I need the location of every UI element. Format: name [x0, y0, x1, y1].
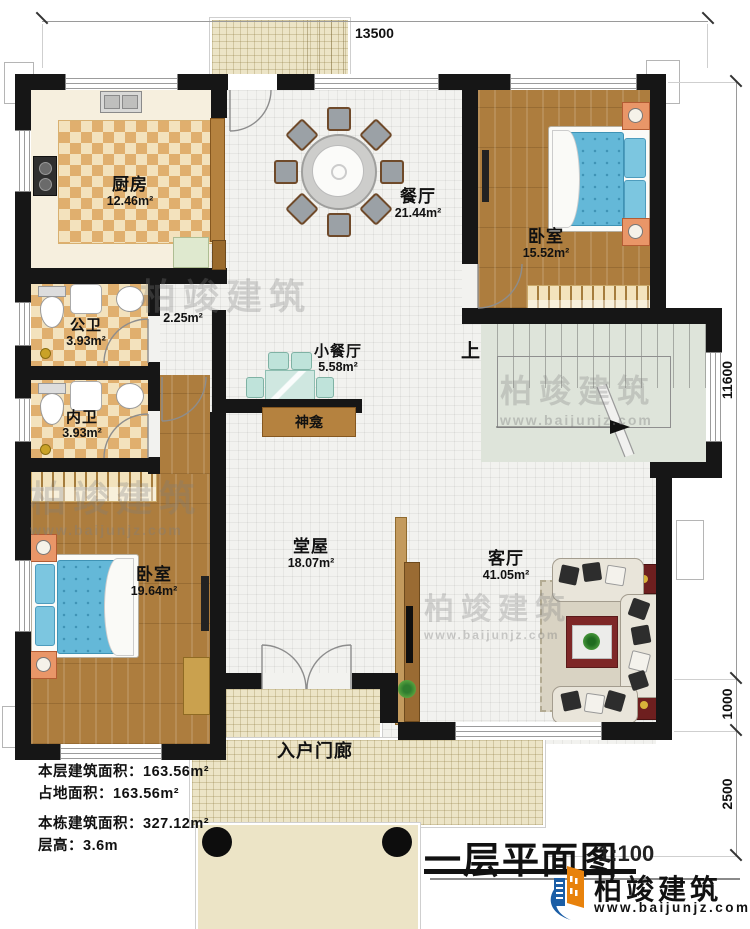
- info-floor-height: 层高：3.6m: [38, 834, 118, 855]
- dimension-right-lower-value: 2500: [719, 759, 735, 829]
- extension-line: [668, 82, 738, 83]
- publicbath-door-arc: [104, 319, 148, 363]
- room-label-inner-bath: 内卫 3.93m²: [62, 410, 102, 440]
- baijun-logo-icon: [543, 862, 593, 922]
- stair-break-mask: [597, 384, 634, 457]
- entry-door-left-arc: [262, 645, 306, 689]
- dimension-line-right: [736, 82, 737, 856]
- room-label-public-bath: 公卫 3.93m²: [66, 318, 106, 348]
- bedroom1-door-arc: [478, 264, 522, 308]
- room-label-kitchen: 厨房 12.46m²: [107, 176, 154, 208]
- room-label-small-dining: 小餐厅 5.58m²: [314, 344, 362, 374]
- room-label-bedroom2: 卧室 19.64m²: [131, 566, 178, 598]
- extension-line: [707, 24, 708, 68]
- entry-door-right-arc: [307, 645, 351, 689]
- info-floor-area: 本层建筑面积：163.56m²: [38, 760, 209, 781]
- room-label-bedroom1: 卧室 15.52m²: [523, 228, 570, 260]
- extension-line: [42, 24, 43, 68]
- floor-plan-canvas: 神龛: [0, 0, 750, 929]
- dimension-line-top: [42, 21, 708, 22]
- bedroom2-door-arc: [162, 377, 206, 421]
- room-label-corridor: 2.25m²: [163, 312, 203, 326]
- room-label-hall: 堂屋 18.07m²: [288, 538, 335, 570]
- plan-scale: 1:100: [598, 841, 654, 867]
- room-label-living: 客厅 41.05m²: [483, 550, 530, 582]
- dimension-top-value: 13500: [355, 25, 394, 41]
- brand-website: www.baijunjz.com: [594, 900, 750, 915]
- stairs-up-label: 上: [461, 336, 480, 363]
- room-label-porch: 入户门廊: [277, 742, 353, 762]
- dimension-right-mid-value: 1000: [719, 669, 735, 739]
- info-building-area: 本栋建筑面积：327.12m²: [38, 812, 209, 833]
- terrace-door-arc: [230, 90, 271, 131]
- info-footprint-area: 占地面积：163.56m²: [38, 782, 179, 803]
- innerbath-door-arc: [104, 414, 148, 458]
- dimension-right-upper-value: 11600: [719, 345, 735, 415]
- room-label-dining: 餐厅 21.44m²: [395, 188, 442, 220]
